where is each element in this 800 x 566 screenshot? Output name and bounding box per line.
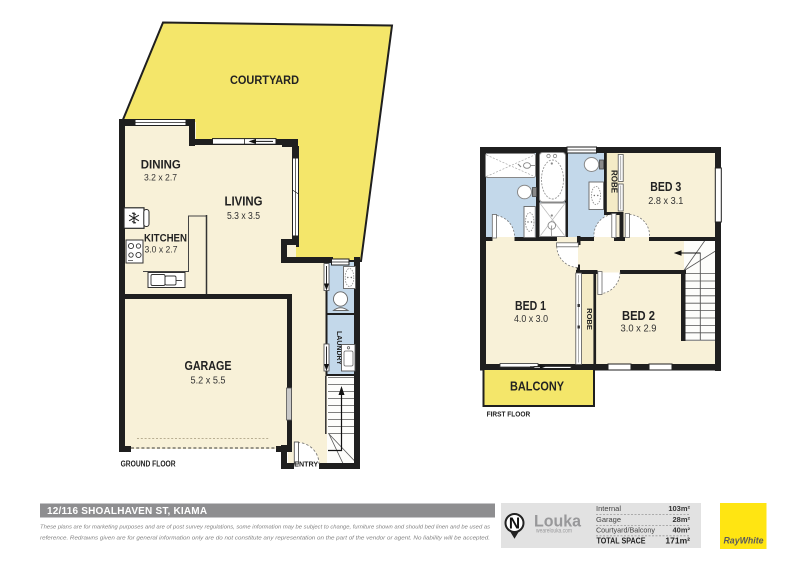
svg-text:28m²: 28m²	[672, 515, 690, 524]
svg-text:BALCONY: BALCONY	[510, 380, 565, 394]
svg-text:These plans are for marketing: These plans are for marketing purposes a…	[40, 525, 490, 531]
svg-text:LIVING: LIVING	[225, 195, 263, 209]
svg-text:4.0 x 3.0: 4.0 x 3.0	[514, 314, 548, 325]
svg-text:TOTAL SPACE: TOTAL SPACE	[597, 537, 647, 546]
svg-text:wearelouka.com: wearelouka.com	[535, 529, 572, 535]
svg-text:reference. Redrawns given are: reference. Redrawns given are for genera…	[40, 536, 490, 542]
svg-text:N: N	[509, 516, 520, 533]
svg-text:BED 1: BED 1	[515, 299, 546, 313]
svg-text:103m²: 103m²	[668, 504, 690, 513]
svg-text:FIRST FLOOR: FIRST FLOOR	[487, 410, 531, 419]
svg-text:5.2 x 5.5: 5.2 x 5.5	[191, 376, 226, 387]
svg-text:DINING: DINING	[141, 158, 181, 172]
svg-text:KITCHEN: KITCHEN	[144, 233, 187, 245]
svg-text:BED 2: BED 2	[622, 309, 655, 323]
svg-text:12/116 SHOALHAVEN ST, KIAMA: 12/116 SHOALHAVEN ST, KIAMA	[47, 506, 207, 517]
svg-text:Garage: Garage	[596, 515, 621, 524]
svg-text:ROBE: ROBE	[610, 170, 619, 194]
svg-text:3.0 x 2.9: 3.0 x 2.9	[621, 324, 657, 335]
svg-text:5.3 x 3.5: 5.3 x 3.5	[227, 211, 260, 222]
svg-text:GROUND FLOOR: GROUND FLOOR	[121, 460, 176, 469]
svg-text:40m²: 40m²	[672, 526, 690, 535]
svg-text:Courtyard/Balcony: Courtyard/Balcony	[596, 526, 655, 535]
svg-text:2.8 x 3.1: 2.8 x 3.1	[648, 196, 683, 207]
svg-text:LAUNDRY: LAUNDRY	[335, 331, 342, 365]
svg-text:GARAGE: GARAGE	[185, 359, 232, 373]
svg-text:171m²: 171m²	[665, 536, 690, 546]
svg-text:ENTRY: ENTRY	[294, 462, 318, 469]
svg-text:3.0 x 2.7: 3.0 x 2.7	[145, 245, 178, 256]
svg-text:ROBE: ROBE	[585, 308, 594, 330]
svg-text:COURTYARD: COURTYARD	[230, 75, 299, 87]
svg-text:3.2 x 2.7: 3.2 x 2.7	[144, 173, 177, 184]
svg-text:RayWhite: RayWhite	[723, 536, 763, 546]
svg-text:BED 3: BED 3	[650, 180, 681, 194]
svg-text:Internal: Internal	[596, 504, 621, 513]
